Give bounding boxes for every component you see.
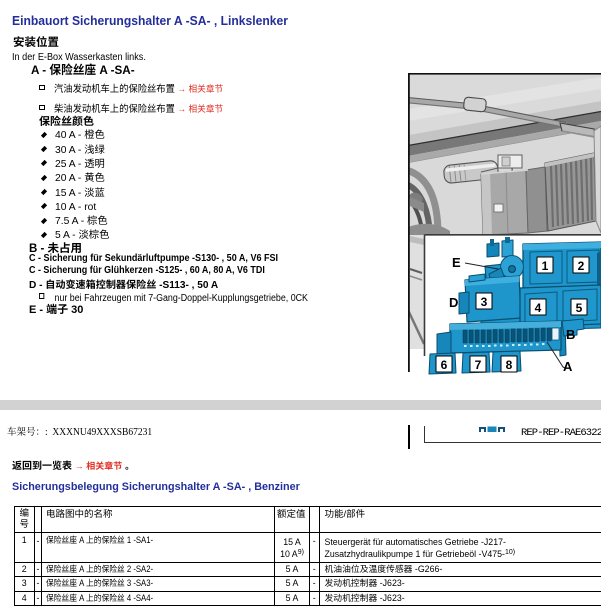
svg-text:3: 3	[481, 295, 488, 309]
svg-text:4: 4	[535, 301, 542, 315]
svg-text:1: 1	[542, 259, 549, 273]
svg-text:7: 7	[475, 358, 482, 372]
svg-text:8: 8	[506, 358, 513, 372]
svg-text:2: 2	[578, 259, 585, 273]
svg-text:6: 6	[441, 358, 448, 372]
svg-text:5: 5	[576, 301, 583, 315]
